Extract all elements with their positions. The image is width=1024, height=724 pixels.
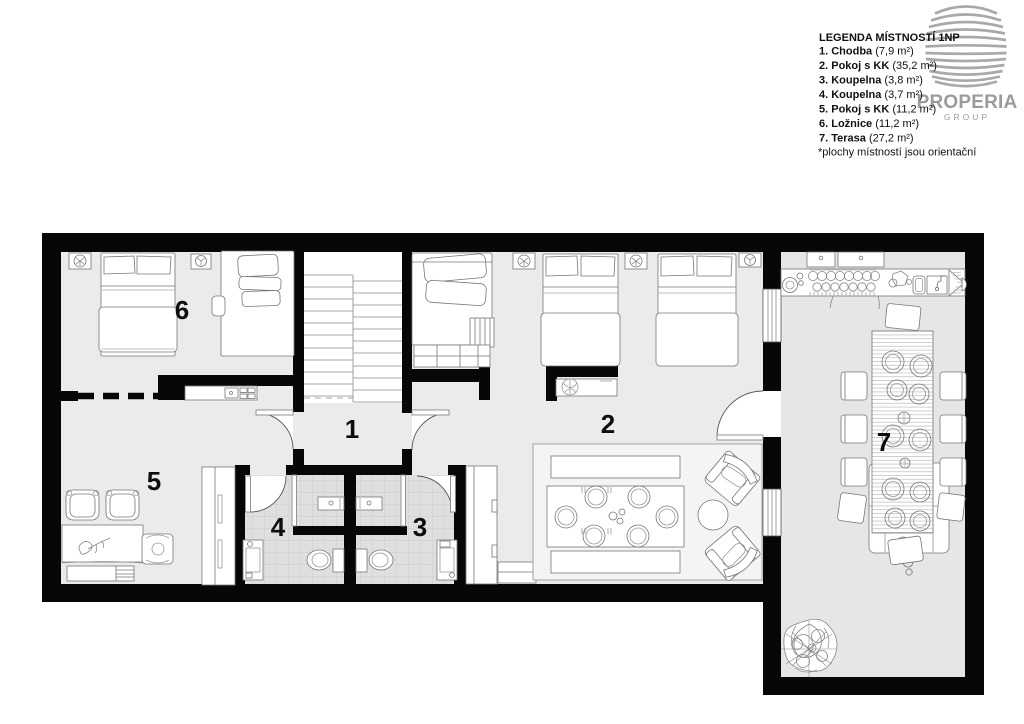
svg-text:2. Pokoj s KK (35,2 m²): 2. Pokoj s KK (35,2 m²) bbox=[819, 60, 937, 72]
svg-text:1: 1 bbox=[345, 414, 359, 444]
svg-text:1. Chodba (7,9 m²): 1. Chodba (7,9 m²) bbox=[819, 46, 914, 58]
svg-text:3: 3 bbox=[413, 512, 427, 542]
svg-text:6: 6 bbox=[175, 295, 189, 325]
svg-text:3. Koupelna (3,8 m²): 3. Koupelna (3,8 m²) bbox=[819, 75, 923, 87]
svg-text:*plochy místností jsou orienta: *plochy místností jsou orientační bbox=[818, 147, 976, 159]
svg-text:6. Ložnice (11,2 m²): 6. Ložnice (11,2 m²) bbox=[819, 118, 919, 130]
svg-text:4. Koupelna (3,7 m²): 4. Koupelna (3,7 m²) bbox=[819, 89, 923, 101]
svg-text:LEGENDA MÍSTNOSTÍ 1NP: LEGENDA MÍSTNOSTÍ 1NP bbox=[819, 31, 960, 44]
svg-text:2: 2 bbox=[601, 409, 615, 439]
svg-text:4: 4 bbox=[271, 512, 286, 542]
svg-text:7: 7 bbox=[877, 427, 891, 457]
svg-text:5: 5 bbox=[147, 466, 161, 496]
svg-text:5. Pokoj s KK (11,2 m²): 5. Pokoj s KK (11,2 m²) bbox=[819, 104, 936, 116]
svg-text:GROUP: GROUP bbox=[944, 112, 990, 122]
svg-text:7. Terasa (27,2 m²): 7. Terasa (27,2 m²) bbox=[819, 133, 914, 145]
